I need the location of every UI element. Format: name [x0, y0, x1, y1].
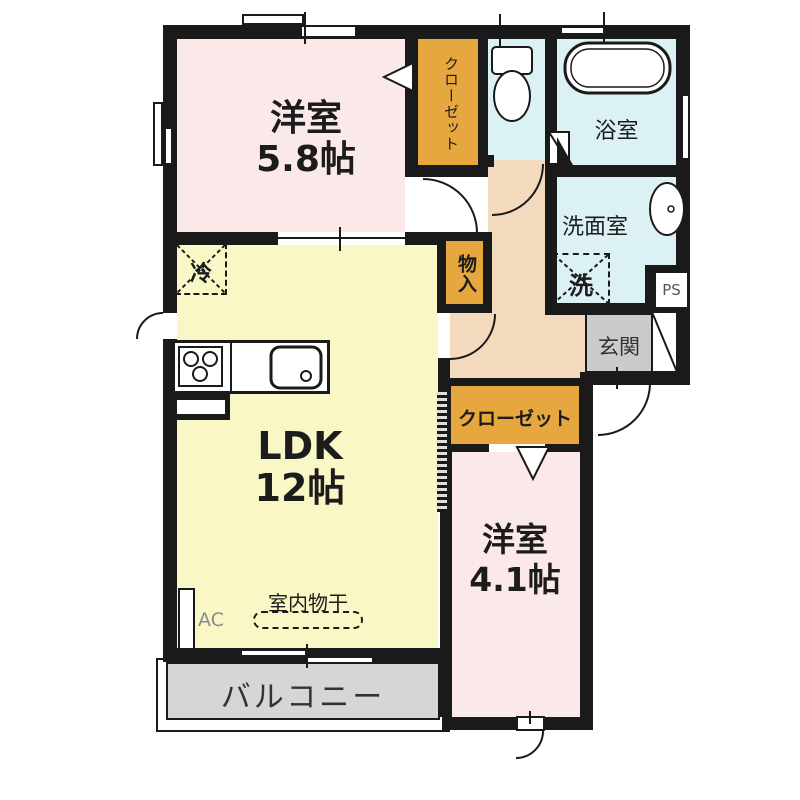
stove-burner-3 — [193, 367, 207, 381]
bedroom1-label: 洋室 5.8帖 — [196, 98, 416, 180]
door-arc-toilet — [492, 164, 543, 215]
closet-upper-label: クローゼット — [434, 46, 462, 161]
kitchen-sink — [271, 347, 321, 388]
floor-plan: 洋室 5.8帖 LDK 12帖 洋室 4.1帖 浴室 洗面室 玄関 バルコニー … — [0, 0, 800, 800]
bedroom1-name: 洋室 — [196, 98, 416, 139]
bedroom2-size: 4.1帖 — [435, 560, 595, 600]
closet-lower-door-mark — [517, 447, 549, 479]
closet-lower-label: クローゼット — [451, 404, 579, 431]
storage-label: 物入 — [450, 246, 480, 302]
front-door-leaf — [652, 312, 677, 372]
refrigerator-label: 冷 — [175, 256, 227, 288]
pipe-space-label: PS — [656, 281, 687, 299]
washroom-label: 洗面室 — [545, 209, 645, 241]
toilet-tank — [492, 47, 532, 74]
door-arc-entrance — [598, 383, 650, 435]
indoor-drying-label: 室内物干 — [253, 587, 363, 616]
ldk-name: LDK — [215, 425, 385, 467]
bedroom2-label: 洋室 4.1帖 — [435, 520, 595, 600]
bedroom1-size: 5.8帖 — [196, 139, 416, 180]
ldk-size: 12帖 — [215, 467, 385, 509]
washer-label: 洗 — [552, 266, 610, 301]
door-arc-bedroom2 — [516, 731, 543, 758]
toilet-bowl — [494, 71, 530, 121]
closet-upper-door-mark — [384, 63, 413, 91]
washroom-sink — [650, 183, 684, 235]
entrance-label: 玄関 — [585, 331, 653, 361]
ac-label: AC — [193, 609, 229, 631]
bath-label: 浴室 — [557, 113, 676, 145]
balcony-label: バルコニー — [166, 672, 440, 716]
door-arc-bedroom1 — [423, 179, 477, 233]
door-arc-left-wall — [137, 313, 163, 339]
stove-burner-1 — [184, 352, 198, 366]
stove-burner-2 — [203, 352, 217, 366]
door-arc-ldk — [450, 314, 495, 359]
ldk-label: LDK 12帖 — [215, 425, 385, 509]
bedroom2-name: 洋室 — [435, 520, 595, 560]
